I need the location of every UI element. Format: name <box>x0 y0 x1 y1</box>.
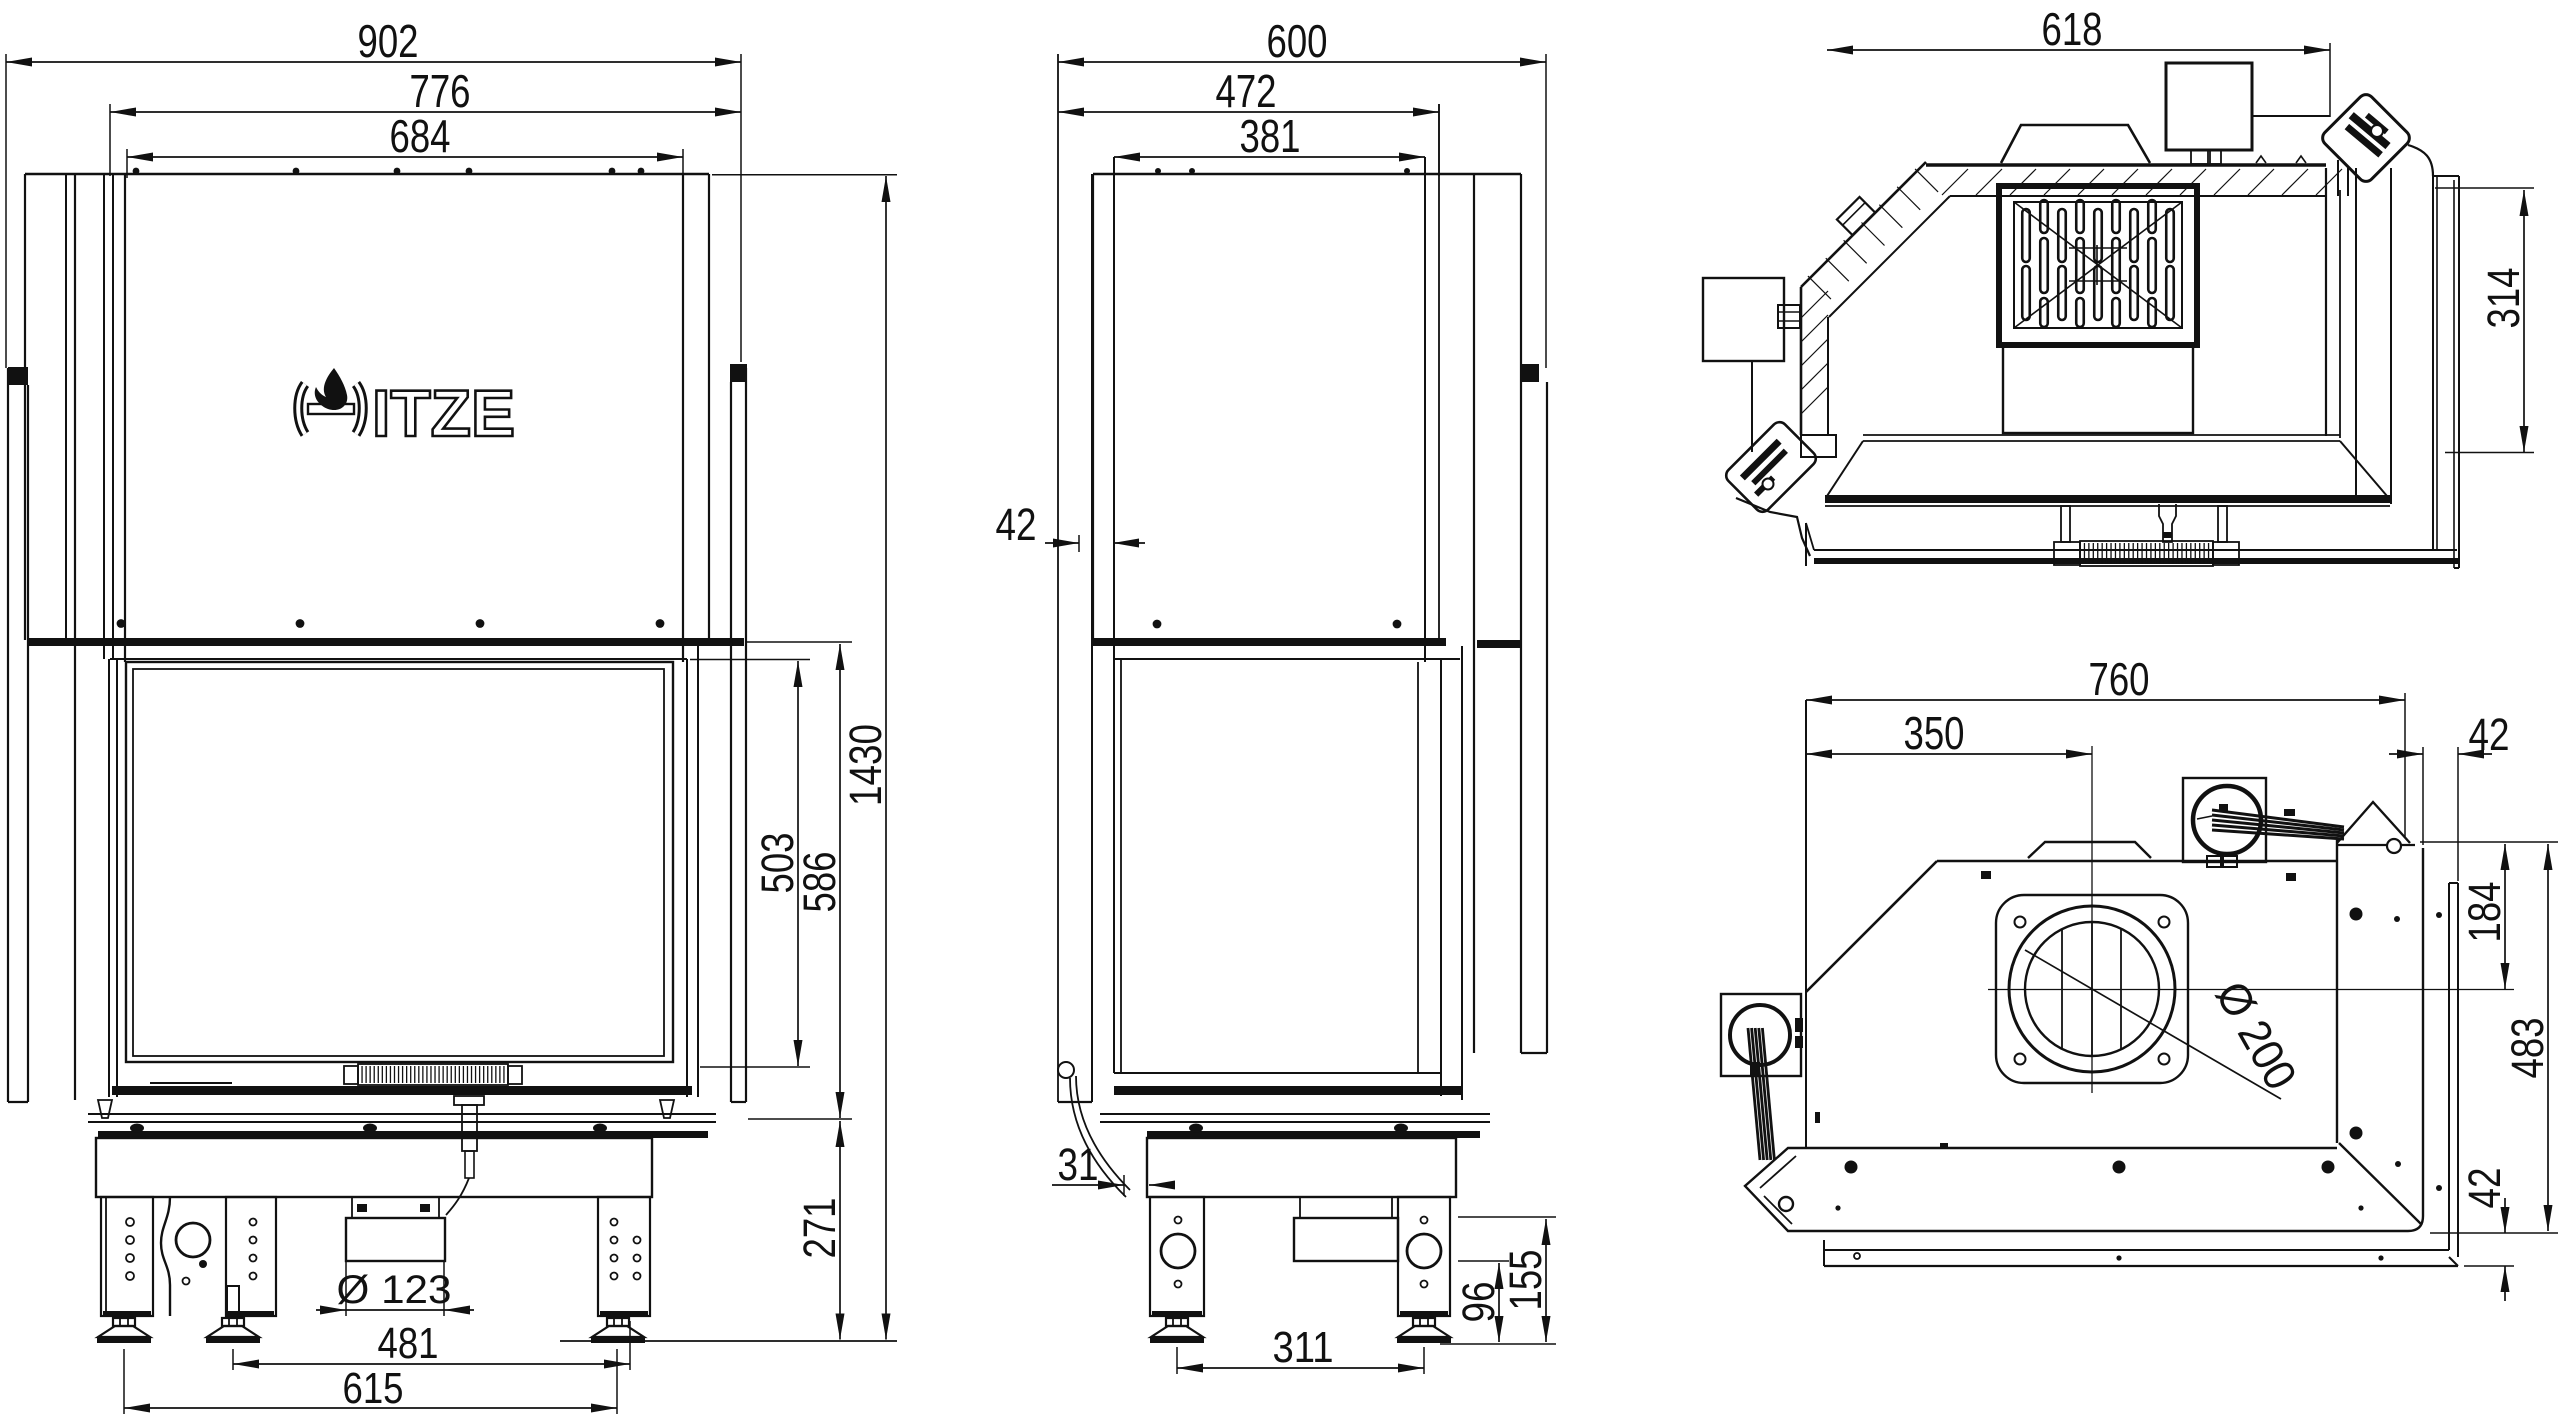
svg-text:503: 503 <box>752 833 803 894</box>
svg-text:155: 155 <box>1500 1250 1551 1311</box>
svg-text:1430: 1430 <box>840 724 891 806</box>
svg-text:42: 42 <box>996 499 1037 550</box>
svg-text:ITZE: ITZE <box>372 376 515 450</box>
svg-text:615: 615 <box>343 1364 404 1413</box>
svg-text:42: 42 <box>2459 1168 2510 1209</box>
svg-text:618: 618 <box>2042 3 2103 55</box>
svg-text:Ø 123: Ø 123 <box>337 1268 452 1312</box>
svg-text:311: 311 <box>1273 1323 1334 1372</box>
svg-text:31: 31 <box>1058 1139 1099 1190</box>
svg-text:684: 684 <box>390 110 451 162</box>
svg-text:760: 760 <box>2089 653 2150 705</box>
svg-text:42: 42 <box>2469 709 2510 760</box>
svg-text:184: 184 <box>2459 882 2510 943</box>
svg-text:96: 96 <box>1453 1282 1504 1323</box>
svg-text:271: 271 <box>794 1198 845 1259</box>
svg-text:350: 350 <box>1904 707 1965 759</box>
svg-text:314: 314 <box>2478 268 2529 329</box>
svg-text:483: 483 <box>2502 1018 2553 1079</box>
svg-text:381: 381 <box>1240 110 1301 162</box>
svg-text:481: 481 <box>378 1319 439 1368</box>
svg-text:902: 902 <box>358 15 419 67</box>
svg-text:600: 600 <box>1267 15 1328 67</box>
